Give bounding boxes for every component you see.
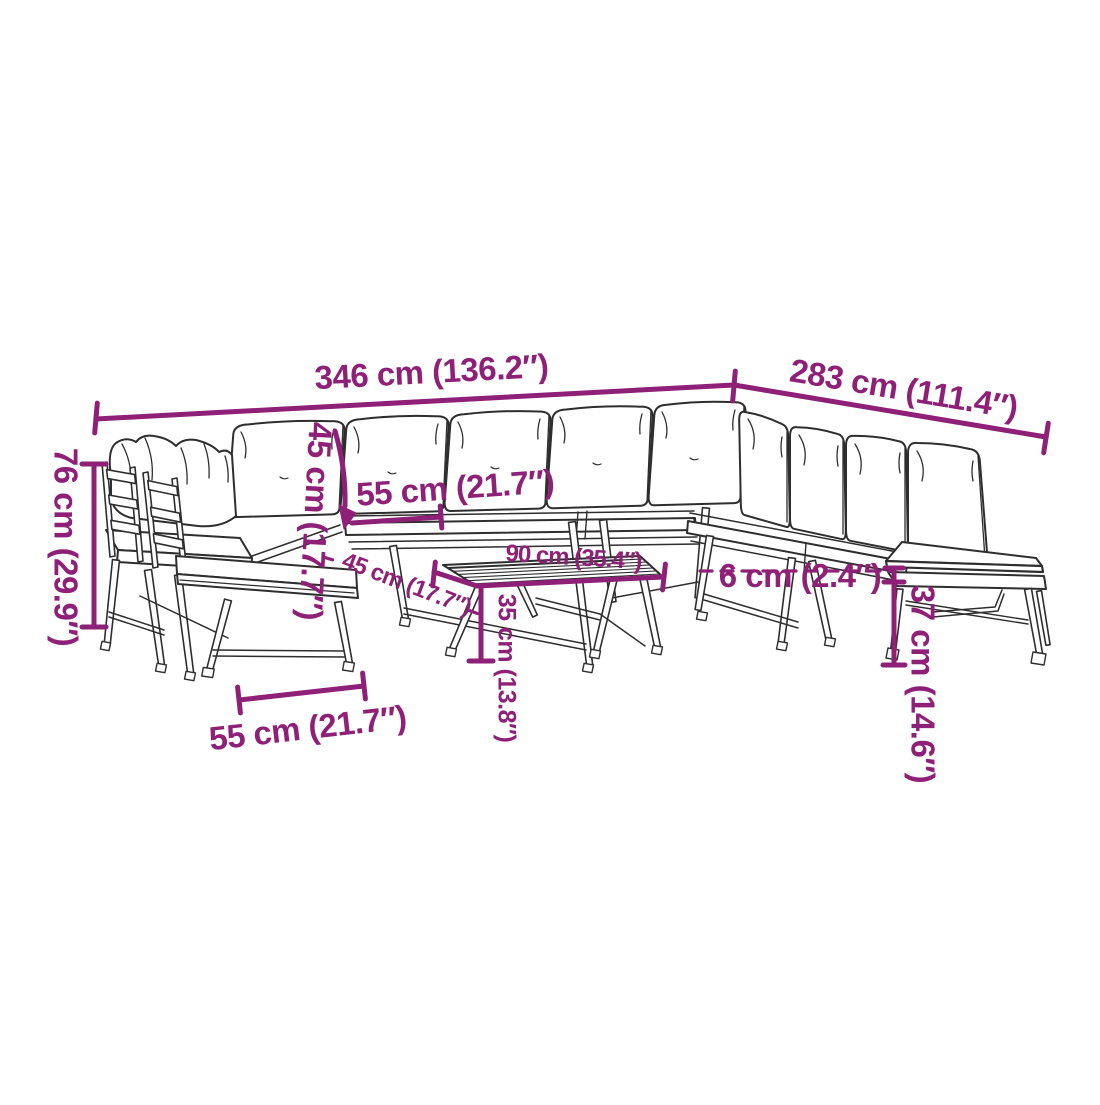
svg-text:37 cm (14.6″): 37 cm (14.6″) [904,585,941,783]
svg-text:76 cm (29.9″): 76 cm (29.9″) [47,448,84,646]
svg-text:6 cm (2.4″): 6 cm (2.4″) [719,557,882,594]
svg-text:35 cm (13.8″): 35 cm (13.8″) [492,594,520,743]
